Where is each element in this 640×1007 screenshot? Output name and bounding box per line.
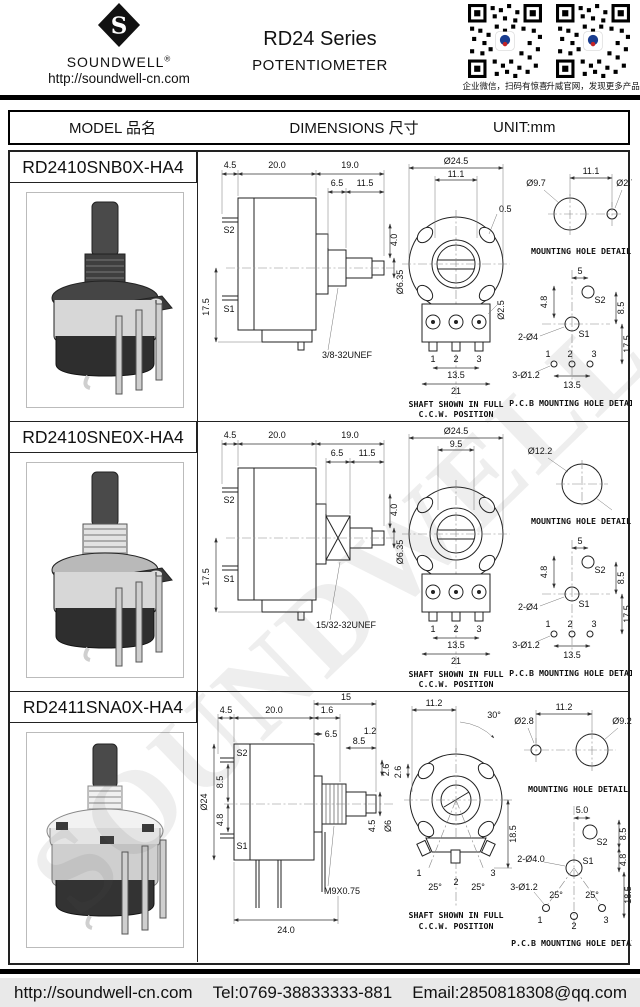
footer-telephone: Tel:0769-38833333-881 [213,983,393,1003]
dim-label: S2 [236,748,247,758]
dimension-drawings: 4.5 20.0 19.0 6.5 11.5 4.0 Ø6.35 S2 S1 [197,422,628,691]
potentiometer-photo-r2 [30,466,180,674]
dim-label: S1 [236,841,247,851]
dim-label: 21 [451,386,461,396]
terminal-number: 2 [453,624,458,634]
front-view: Ø24.5 9.5 1 2 3 13.5 21 [402,426,510,689]
terminal-number: 2 [453,877,458,887]
dim-label: 11.5 [357,178,374,188]
front-view: Ø24.5 11.1 0.5 Ø2.5 1 2 [402,156,512,419]
terminal-number: 3 [476,354,481,364]
model-name: RD2410SNE0X-HA4 [10,422,197,453]
page-title: RD24 Series [225,28,415,51]
table-header: MODEL 品名 DIMENSIONS 尺寸 UNIT:mm [8,110,630,145]
dim-label: 20.0 [268,430,286,440]
brand-text: SOUNDWELL [67,54,165,70]
brand-block: S SOUNDWELL® http://soundwell-cn.com [14,2,224,86]
dim-label: 20.0 [265,705,283,715]
dim-label: 18.5 [623,886,632,904]
dim-label: 13.5 [563,380,581,390]
dim-label: Ø6.35 [395,540,405,565]
dim-label: 21 [451,656,461,666]
qr-caption-2: 升威官网，发现更多产品 [546,80,640,92]
dim-label: 4.8 [539,566,549,579]
drawing-caption: SHAFT SHOWN IN FULL [409,910,504,920]
drawing-r2: 4.5 20.0 19.0 6.5 11.5 4.0 Ø6.35 S2 S1 [198,422,632,691]
product-photo [26,462,184,678]
page-subtitle: POTENTIOMETER [225,57,415,74]
dim-label: 25° [428,882,442,892]
dim-label: 4.5 [224,430,237,440]
dim-label: 8.5 [353,736,366,746]
dim-label: 9.5 [450,439,463,449]
dim-label: 24.0 [277,925,295,935]
dim-label: 8.5 [618,828,628,841]
drawing-caption: P.C.B MOUNTING HOLE DETAIL [509,668,632,678]
dim-label: Ø2.7 [616,178,632,188]
dim-label: 25° [585,890,599,900]
dim-label: 19.0 [341,430,359,440]
drawing-r1: 4.5 20.0 19.0 6.5 11.5 4.0 Ø6.35 S2 S1 [198,152,632,421]
dim-label: 8.5 [616,572,626,585]
dim-label: Ø24 [199,793,209,810]
registered-mark: ® [164,54,171,63]
table-row: RD2410SNE0X-HA4 [10,422,628,692]
dim-label: 2.6 [381,764,391,777]
dim-label: Ø9.7 [526,178,546,188]
dim-label: 18.5 [508,825,518,843]
dim-label: 3-Ø1.2 [510,882,538,892]
drawing-caption: MOUNTING HOLE DETAIL [531,516,631,526]
qr-code-2: 升威官网，发现更多产品 [550,4,636,92]
dim-label: 11.1 [448,169,465,179]
dim-label: Ø6.35 [395,270,405,295]
dim-label: 0.5 [499,204,512,214]
dim-label: Ø24.5 [444,156,469,166]
drawing-caption: SHAFT SHOWN IN FULL [409,399,504,409]
qr-caption-1: 企业微信，扫码有惊喜 [462,80,547,92]
dim-label: S1 [582,856,593,866]
dim-label: Ø24.5 [444,426,469,436]
terminal-number: 1 [545,619,550,629]
drawing-caption: MOUNTING HOLE DETAIL [531,246,631,256]
side-view: 4.5 20.0 19.0 6.5 11.5 4.0 Ø6.35 S2 S1 [201,430,405,630]
soundwell-logo-icon: S [97,2,141,48]
dim-label: 11.2 [426,698,443,708]
qr-code-1: 企业微信，扫码有惊喜 [462,4,548,92]
dim-label: 13.5 [447,370,465,380]
dim-label: 1.2 [364,726,377,736]
table-row: RD2411SNA0X-HA4 [10,692,628,962]
datasheet-page: S SOUNDWELL® http://soundwell-cn.com RD2… [0,0,640,1007]
column-header-dimensions: DIMENSIONS 尺寸 [215,117,493,138]
side-view: 4.5 20.0 19.0 6.5 11.5 4.0 Ø6.35 S2 S1 [201,160,405,360]
dim-label: 17.5 [622,605,632,623]
potentiometer-photo-r3 [30,736,180,944]
dim-label: 8.5 [215,776,225,789]
terminal-number: 3 [591,349,596,359]
product-photo [26,192,184,408]
dim-label: 3-Ø1.2 [512,370,540,380]
dim-label: 4.8 [618,854,628,867]
dim-label: Ø2.5 [496,300,506,320]
dim-label: 2.6 [393,766,403,779]
dim-label: 6.5 [331,448,344,458]
mounting-hole-detail: 11.1 Ø9.7 Ø2.7 MOUNTING HOLE DETAIL [526,166,632,256]
dim-label: 6.5 [331,178,344,188]
terminal-number: 1 [430,624,435,634]
dim-label: 4.0 [389,234,399,247]
dim-label: S1 [578,329,589,339]
product-photo [26,732,184,948]
dim-label: 17.5 [201,568,211,586]
dim-label: S1 [223,304,234,314]
dimension-table: RD2410SNB0X-HA4 [8,150,630,965]
terminal-number: 2 [567,349,572,359]
brand-site-url: http://soundwell-cn.com [14,71,224,86]
dim-label: 5.0 [576,805,589,815]
qr-code-icon [556,4,630,78]
terminal-number: 1 [430,354,435,364]
dim-label: 13.5 [563,650,581,660]
terminal-number: 2 [567,619,572,629]
mounting-hole-detail: 11.2 Ø2.8 Ø9.2 MOUNTING HOLE DETAIL [514,702,632,794]
dim-label: 20.0 [268,160,286,170]
model-name: RD2410SNB0X-HA4 [10,152,197,183]
dim-label: 3-Ø1.2 [512,640,540,650]
terminal-number: 1 [545,349,550,359]
drawing-caption: C.C.W. POSITION [419,921,494,931]
drawing-caption: MOUNTING HOLE DETAIL [528,784,628,794]
thread-label: M9X0.75 [324,886,360,896]
dim-label: S2 [596,837,607,847]
side-view: 15 4.5 20.0 1.6 6.5 1.2 8.5 2.6 [199,692,394,935]
terminal-number: 2 [571,921,576,931]
column-header-unit: UNIT:mm [493,119,628,136]
dim-label: 11.2 [556,702,573,712]
column-header-model: MODEL 品名 [10,117,215,138]
dim-label: S2 [594,295,605,305]
footer-email: Email:2850818308@qq.com [412,983,627,1003]
terminal-number: 1 [537,915,542,925]
dim-label: 2-Ø4.0 [517,854,545,864]
dim-label: 25° [471,882,485,892]
footer-divider-bar [0,969,640,974]
dim-label: Ø6 [383,820,393,832]
dim-label: 25° [549,890,563,900]
dim-label: Ø12.2 [528,446,553,456]
dim-label: 4.5 [220,705,233,715]
terminal-number: 3 [603,915,608,925]
dim-label: S2 [223,495,234,505]
drawing-caption: SHAFT SHOWN IN FULL [409,669,504,679]
dim-label: 11.5 [359,448,376,458]
dim-label: 19.0 [341,160,359,170]
footer: http://soundwell-cn.com Tel:0769-3883333… [0,978,640,1007]
dim-label: 8.5 [616,302,626,315]
drawing-caption: P.C.B MOUNTING HOLE DETAIL [509,398,632,408]
dimension-drawings: 4.5 20.0 19.0 6.5 11.5 4.0 Ø6.35 S2 S1 [197,152,628,421]
dim-label: S2 [223,225,234,235]
drawing-r3: 15 4.5 20.0 1.6 6.5 1.2 8.5 2.6 [198,692,632,961]
brand-name: SOUNDWELL® [14,54,224,70]
header-divider-bar [0,95,640,100]
terminal-number: 3 [591,619,596,629]
dim-label: 4.8 [215,814,225,827]
svg-text:S: S [111,13,128,40]
table-row: RD2410SNB0X-HA4 [10,152,628,422]
terminal-number: 2 [453,354,458,364]
drawing-caption: C.C.W. POSITION [419,679,494,689]
front-view: 11.2 30° 2.6 18.5 1 2 [393,698,518,931]
dim-label: 2-Ø4 [518,332,538,342]
dim-label: 6.5 [325,729,338,739]
thread-label: 3/8-32UNEF [322,350,373,360]
page-title-block: RD24 Series POTENTIOMETER [225,28,415,74]
drawing-caption: P.C.B MOUNTING HOLE DETAIL [511,938,632,948]
dim-label: 4.5 [367,820,377,833]
dimension-drawings: 15 4.5 20.0 1.6 6.5 1.2 8.5 2.6 [197,692,628,962]
mounting-hole-detail: Ø12.2 MOUNTING HOLE DETAIL [528,446,631,526]
dim-label: Ø9.2 [612,716,632,726]
terminal-number: 3 [476,624,481,634]
dim-label: 5 [577,536,582,546]
pcb-mounting-detail: 5.0 S2 S1 8.5 4.8 18.5 2-Ø4.0 25° 25° [510,805,632,948]
dim-label: 4.5 [224,160,237,170]
dim-label: 5 [577,266,582,276]
pcb-mounting-detail: S2 S1 5 4.8 8.5 17.5 2-Ø4 1 [509,536,632,678]
dim-label: 1.6 [321,705,334,715]
dim-label: S1 [223,574,234,584]
dim-label: 17.5 [201,298,211,316]
potentiometer-photo-r1 [30,196,180,404]
terminal-number: 1 [416,868,421,878]
terminal-number: 3 [490,868,495,878]
dim-label: 30° [487,710,501,720]
dim-label: 11.1 [583,166,600,176]
drawing-caption: C.C.W. POSITION [419,409,494,419]
dim-label: 13.5 [447,640,465,650]
thread-label: 15/32-32UNEF [316,620,377,630]
qr-code-icon [468,4,542,78]
dim-label: S2 [594,565,605,575]
dim-label: 4.0 [389,504,399,517]
dim-label: 17.5 [622,335,632,353]
dim-label: Ø2.8 [514,716,534,726]
model-name: RD2411SNA0X-HA4 [10,692,197,723]
pcb-mounting-detail: S2 S1 5 4.8 8.5 17.5 2-Ø4 1 [509,266,632,408]
dim-label: 15 [341,692,351,702]
footer-site-url: http://soundwell-cn.com [14,983,193,1003]
dim-label: 2-Ø4 [518,602,538,612]
dim-label: 4.8 [539,296,549,309]
dim-label: S1 [578,599,589,609]
